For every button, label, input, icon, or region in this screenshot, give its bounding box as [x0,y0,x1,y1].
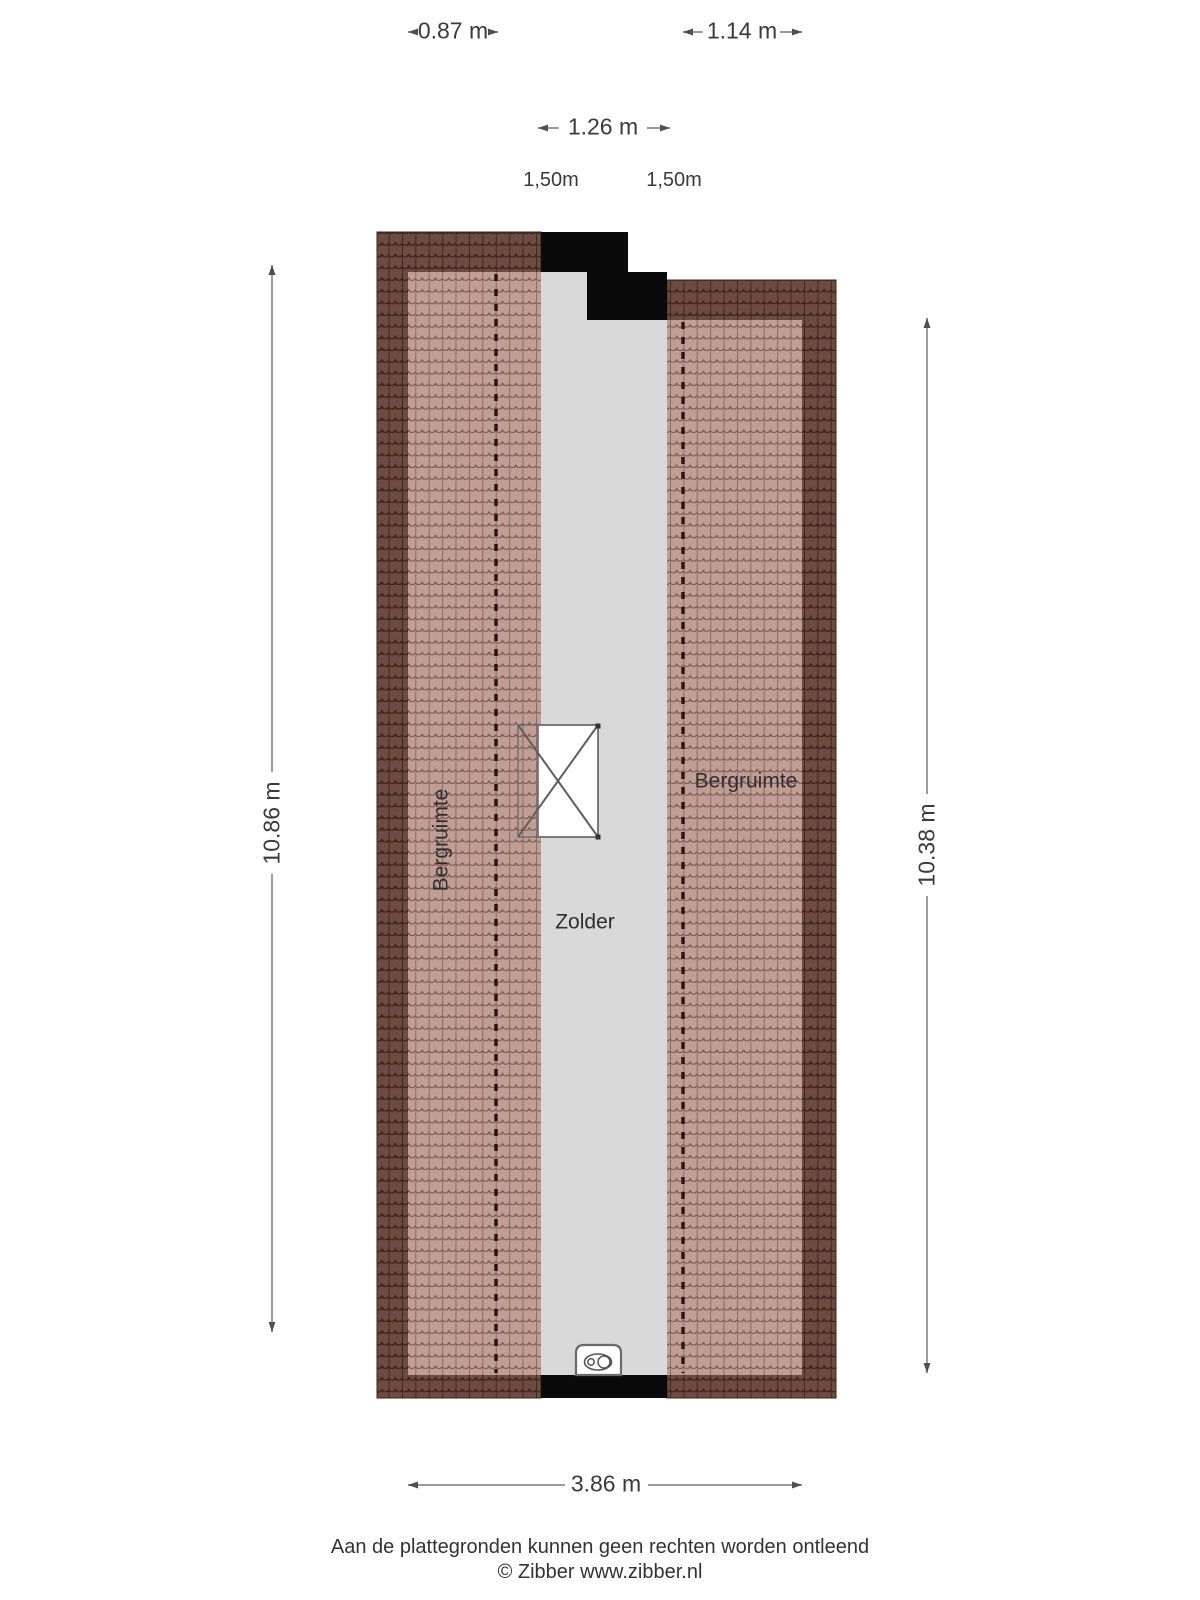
storage-area-left [408,272,541,1375]
headroom-label-left: 1,50m [523,170,579,190]
wall-bottom [541,1375,667,1398]
room-label-attic: Zolder [555,912,615,933]
wall-top-step [587,272,667,320]
footer-disclaimer: Aan de plattegronden kunnen geen rechten… [331,1537,869,1557]
wall-top-left [541,232,628,272]
floorplan-page: 0.87 m 1.14 m 1.26 m 1,50m 1,50m 10.86 m… [0,0,1200,1600]
dim-label-top-left-width: 0.87 m [418,20,488,43]
storage-area-right [667,320,802,1375]
boiler-icon [576,1345,621,1375]
room-label-storage-left: Bergruimte [431,789,452,892]
dim-label-bottom-width: 3.86 m [571,1473,641,1496]
room-label-storage-right: Bergruimte [695,771,798,792]
dim-label-stair-opening: 1.26 m [568,116,638,139]
dim-label-left-height: 10.86 m [261,781,284,864]
dim-label-top-right-width: 1.14 m [707,20,777,43]
dim-label-right-height: 10.38 m [916,803,939,886]
footer-copyright: © Zibber www.zibber.nl [498,1562,703,1582]
floorplan-drawing [0,0,1200,1600]
headroom-label-right: 1,50m [646,170,702,190]
